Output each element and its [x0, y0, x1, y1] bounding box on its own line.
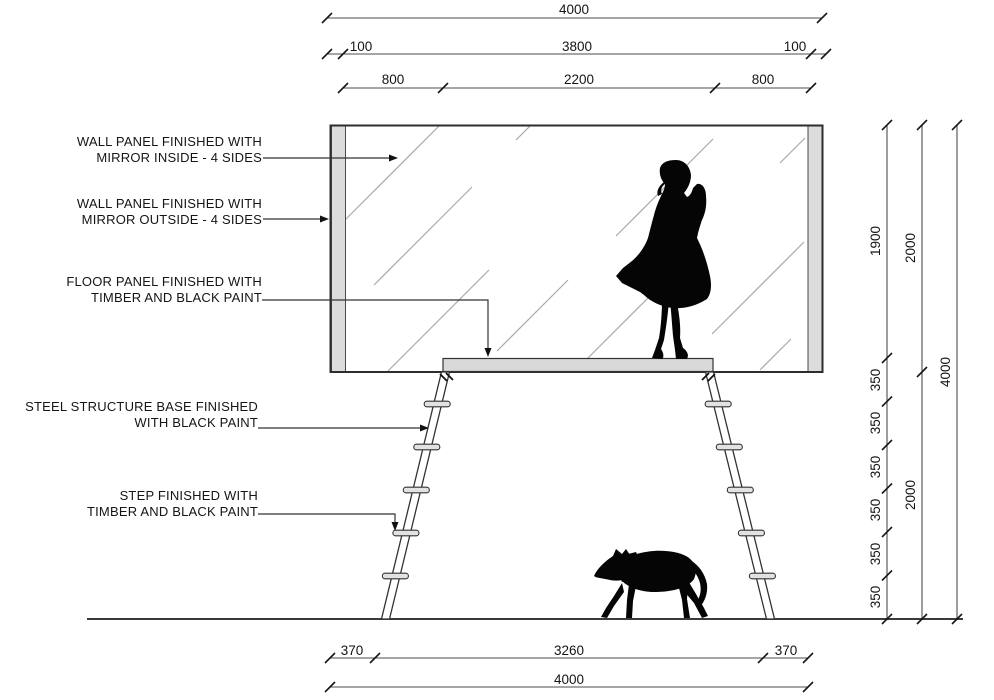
annotation-line: TIMBER AND BLACK PAINT	[12, 290, 262, 306]
annotation-wall-panel-inside: WALL PANEL FINISHED WITH MIRROR INSIDE -…	[12, 134, 262, 165]
steel-leg-right	[702, 372, 775, 619]
floor-panel	[443, 359, 713, 372]
annotation-line: MIRROR INSIDE - 4 SIDES	[12, 150, 262, 166]
dim-right-350-2: 350	[868, 401, 884, 445]
annotation-step: STEP FINISHED WITH TIMBER AND BLACK PAIN…	[8, 488, 258, 519]
dim-right-4000: 4000	[938, 350, 954, 394]
annotation-wall-panel-outside: WALL PANEL FINISHED WITH MIRROR OUTSIDE …	[12, 196, 262, 227]
dog-silhouette	[594, 549, 708, 618]
annotation-line: STEP FINISHED WITH	[8, 488, 258, 504]
dim-top-overall: 4000	[544, 2, 604, 17]
dim-right-350-6: 350	[868, 575, 884, 619]
wall-panel-left	[332, 126, 346, 372]
annotation-line: WALL PANEL FINISHED WITH	[12, 196, 262, 212]
annotation-line: WALL PANEL FINISHED WITH	[12, 134, 262, 150]
step-rungs	[382, 401, 775, 579]
dim-right-2000-upper: 2000	[903, 226, 919, 270]
elevation-drawing: WALL PANEL FINISHED WITH MIRROR INSIDE -…	[0, 0, 994, 700]
dim-top-100-right: 100	[765, 39, 825, 54]
annotation-steel-base: STEEL STRUCTURE BASE FINISHED WITH BLACK…	[8, 399, 258, 430]
annotation-line: FLOOR PANEL FINISHED WITH	[12, 274, 262, 290]
annotation-line: TIMBER AND BLACK PAINT	[8, 504, 258, 520]
dim-right-350-5: 350	[868, 532, 884, 576]
dim-right-350-1: 350	[868, 358, 884, 402]
mirror-box	[331, 125, 823, 372]
dim-top-3800: 3800	[547, 39, 607, 54]
dim-top-800-left: 800	[363, 72, 423, 87]
annotation-line: STEEL STRUCTURE BASE FINISHED	[8, 399, 258, 415]
dim-right-350-4: 350	[868, 488, 884, 532]
dim-right-1900: 1900	[868, 219, 884, 263]
elevation-linework	[0, 0, 994, 700]
steel-leg-left	[382, 372, 454, 619]
dim-top-100-left: 100	[331, 39, 391, 54]
annotation-line: MIRROR OUTSIDE - 4 SIDES	[12, 212, 262, 228]
dim-bottom-4000: 4000	[539, 672, 599, 687]
dim-top-800-right: 800	[733, 72, 793, 87]
dim-bottom-370-left: 370	[322, 643, 382, 658]
dim-bottom-3260: 3260	[539, 643, 599, 658]
annotation-floor-panel: FLOOR PANEL FINISHED WITH TIMBER AND BLA…	[12, 274, 262, 305]
dim-right-2000-lower: 2000	[903, 473, 919, 517]
wall-panel-right	[808, 126, 822, 372]
dim-top-2200: 2200	[549, 72, 609, 87]
dim-right-350-3: 350	[868, 445, 884, 489]
annotation-line: WITH BLACK PAINT	[8, 415, 258, 431]
dim-bottom-370-right: 370	[756, 643, 816, 658]
